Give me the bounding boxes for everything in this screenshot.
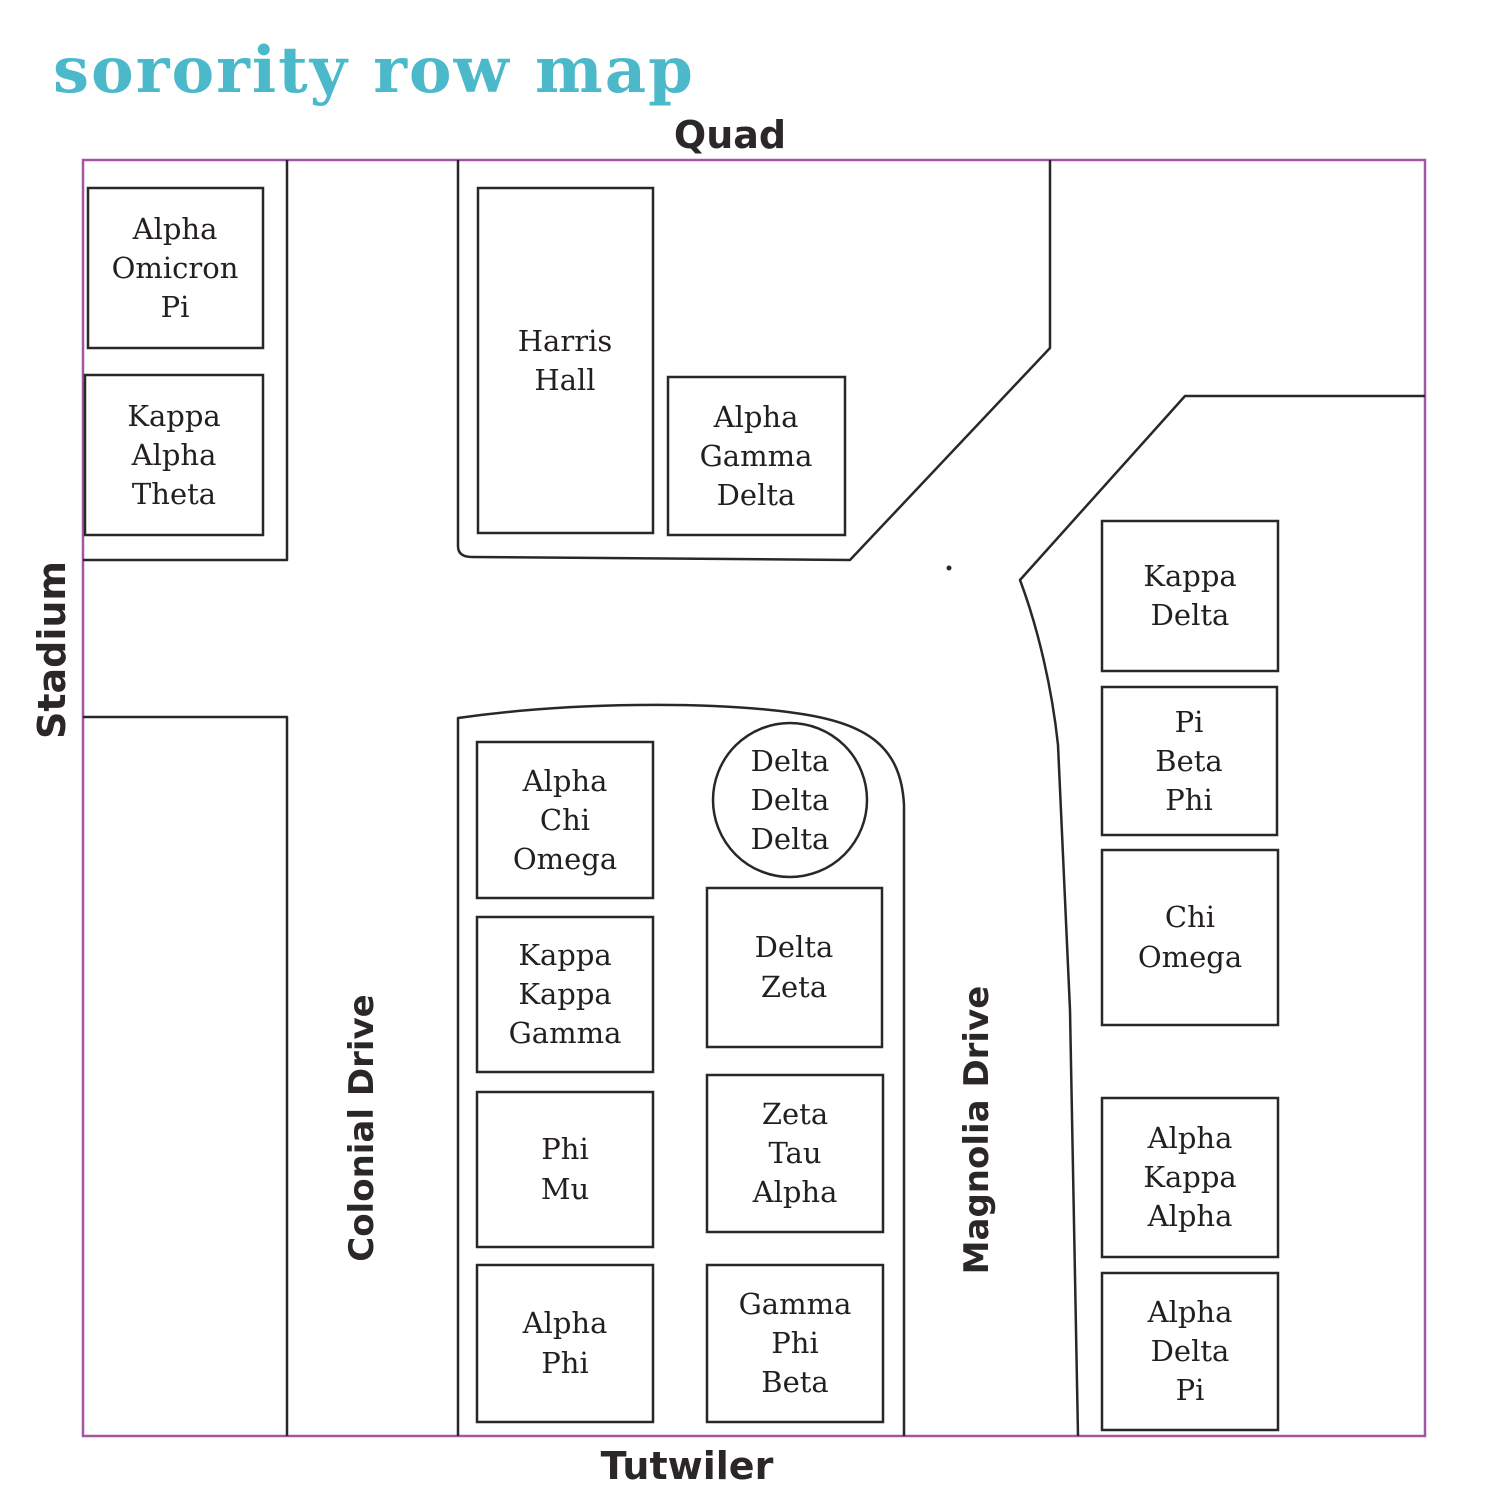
building-harris-hall: Harris Hall [478, 188, 653, 533]
building-label-line: Omega [513, 842, 617, 876]
building-phi-mu: Phi Mu [477, 1092, 653, 1247]
building-label-line: Kappa [518, 938, 611, 972]
building-label-line: Omega [1138, 940, 1242, 974]
building-label-line: Gamma [509, 1016, 622, 1050]
building-label-line: Tau [768, 1136, 821, 1170]
building-alpha-gamma-delta: Alpha Gamma Delta [668, 377, 845, 535]
building-zeta-tau-alpha: Zeta Tau Alpha [707, 1075, 883, 1232]
building-label-line: Delta [755, 930, 834, 964]
building-label-line: Phi [541, 1346, 588, 1380]
building-label-line: Pi [1176, 1373, 1205, 1407]
building-label-line: Omicron [112, 251, 239, 285]
building-kappa-delta-box [1102, 521, 1278, 671]
building-kappa-alpha-theta: Kappa Alpha Theta [85, 375, 263, 535]
building-label-line: Delta [1151, 598, 1230, 632]
page-title: sorority row map [53, 33, 695, 108]
building-label-line: Mu [541, 1172, 589, 1206]
building-phi-mu-box [477, 1092, 653, 1247]
building-label-line: Alpha [522, 1306, 608, 1340]
building-label-line: Delta [751, 744, 830, 778]
building-label-line: Kappa [1143, 1160, 1236, 1194]
building-label-line: Alpha [131, 438, 217, 472]
building-label-line: Hall [534, 363, 595, 397]
building-kappa-kappa-gamma: Kappa Kappa Gamma [477, 917, 653, 1072]
building-label-line: Alpha [1147, 1121, 1233, 1155]
building-chi-omega: Chi Omega [1102, 850, 1278, 1025]
building-label-line: Pi [161, 290, 190, 324]
building-label-line: Alpha [1147, 1295, 1233, 1329]
building-delta-zeta-box [707, 888, 882, 1047]
building-label-line: Kappa [1143, 559, 1236, 593]
stray-dot [947, 566, 952, 571]
building-label-line: Kappa [518, 977, 611, 1011]
map-canvas: sorority row map Quad Stadium Colonial D… [0, 0, 1500, 1500]
street-label-quad: Quad [674, 113, 786, 157]
building-label-line: Beta [761, 1365, 828, 1399]
building-label-line: Theta [132, 477, 216, 511]
building-pi-beta-phi: Pi Beta Phi [1102, 687, 1277, 835]
building-alpha-phi: Alpha Phi [477, 1265, 653, 1422]
building-label-line: Harris [518, 324, 612, 358]
road-edge-lowerleft-block [83, 717, 287, 1436]
building-alpha-kappa-alpha: Alpha Kappa Alpha [1102, 1098, 1278, 1257]
building-label-line: Delta [751, 822, 830, 856]
building-label-line: Alpha [752, 1175, 838, 1209]
building-alpha-phi-box [477, 1265, 653, 1422]
building-label-line: Zeta [761, 970, 827, 1004]
building-label-line: Delta [751, 783, 830, 817]
building-label-line: Zeta [762, 1097, 828, 1131]
building-label-line: Chi [1165, 900, 1215, 934]
street-label-tutwiler: Tutwiler [601, 1444, 774, 1488]
building-chi-omega-box [1102, 850, 1278, 1025]
building-delta-zeta: Delta Zeta [707, 888, 882, 1047]
building-alpha-chi-omega: Alpha Chi Omega [477, 742, 653, 898]
building-label-line: Delta [1151, 1334, 1230, 1368]
street-label-colonial-drive: Colonial Drive [342, 994, 382, 1261]
building-alpha-delta-pi: Alpha Delta Pi [1102, 1273, 1278, 1430]
building-label-line: Gamma [739, 1287, 852, 1321]
building-label-line: Alpha [132, 212, 218, 246]
building-alpha-omicron-pi: Alpha Omicron Pi [88, 188, 263, 348]
building-label-line: Alpha [1147, 1199, 1233, 1233]
building-harris-hall-box [478, 188, 653, 533]
building-label-line: Gamma [700, 439, 813, 473]
building-gamma-phi-beta: Gamma Phi Beta [707, 1265, 883, 1422]
building-label-line: Alpha [522, 764, 608, 798]
street-label-stadium: Stadium [30, 561, 74, 739]
building-label-line: Beta [1155, 744, 1222, 778]
building-label-line: Pi [1175, 705, 1204, 739]
building-delta-delta-delta: Delta Delta Delta [713, 723, 867, 877]
building-label-line: Phi [771, 1326, 818, 1360]
building-label-line: Phi [541, 1132, 588, 1166]
building-label-line: Kappa [127, 399, 220, 433]
building-kappa-delta: Kappa Delta [1102, 521, 1278, 671]
building-label-line: Delta [717, 478, 796, 512]
road-edge-magnolia-east [1020, 396, 1425, 1436]
building-label-line: Phi [1165, 783, 1212, 817]
sorority-row-map: sorority row map Quad Stadium Colonial D… [0, 0, 1500, 1500]
street-label-magnolia-drive: Magnolia Drive [957, 986, 997, 1275]
building-label-line: Chi [540, 803, 590, 837]
building-label-line: Alpha [713, 400, 799, 434]
